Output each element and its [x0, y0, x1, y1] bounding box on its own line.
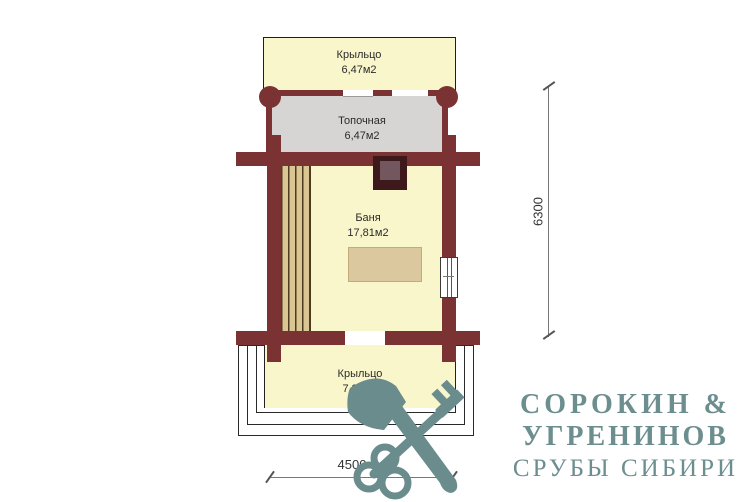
porch-top-label: Крыльцо 6,47м2 [263, 48, 455, 78]
bench-planks [281, 166, 311, 331]
furnace-room-name: Топочная [282, 114, 442, 129]
porch-top-name: Крыльцо [263, 48, 455, 63]
window-glass-line [447, 258, 452, 297]
logo-line-1: СОРОКИН & [498, 389, 753, 421]
dimension-tick-top [543, 81, 556, 91]
wall-left-vertical [267, 135, 281, 362]
log-corner-left-icon [259, 86, 281, 108]
porch-top-area: 6,47м2 [263, 63, 455, 78]
bath-room-label: Баня 17,81м2 [288, 211, 448, 241]
logo-line-2: УГРЕНИНОВ [498, 421, 753, 453]
floor-plan-canvas: Крыльцо 6,47м2 Топочная 6,47м2 Баня 17,8… [0, 0, 753, 502]
dimension-value-vertical: 6300 [531, 190, 546, 234]
bath-room-name: Баня [288, 211, 448, 226]
table [348, 247, 422, 282]
bath-room-area: 17,81м2 [288, 226, 448, 241]
logo-line-3: СРУБЫ СИБИРИ [498, 455, 753, 483]
log-corner-right-icon [436, 86, 458, 108]
stove-firebox [380, 161, 400, 180]
furnace-window-opening [392, 90, 428, 96]
wall-right-vertical [442, 135, 456, 362]
bath-door-opening [345, 331, 385, 345]
furnace-room-area: 6,47м2 [282, 129, 442, 144]
furnace-door-opening [343, 90, 373, 97]
dimension-tick-bottom [543, 330, 556, 340]
axe-and-key-icon [336, 372, 478, 502]
window-mid-tick [443, 276, 454, 277]
window [440, 257, 458, 298]
furnace-room-label: Топочная 6,47м2 [282, 114, 442, 144]
dimension-line-vertical [548, 87, 549, 337]
